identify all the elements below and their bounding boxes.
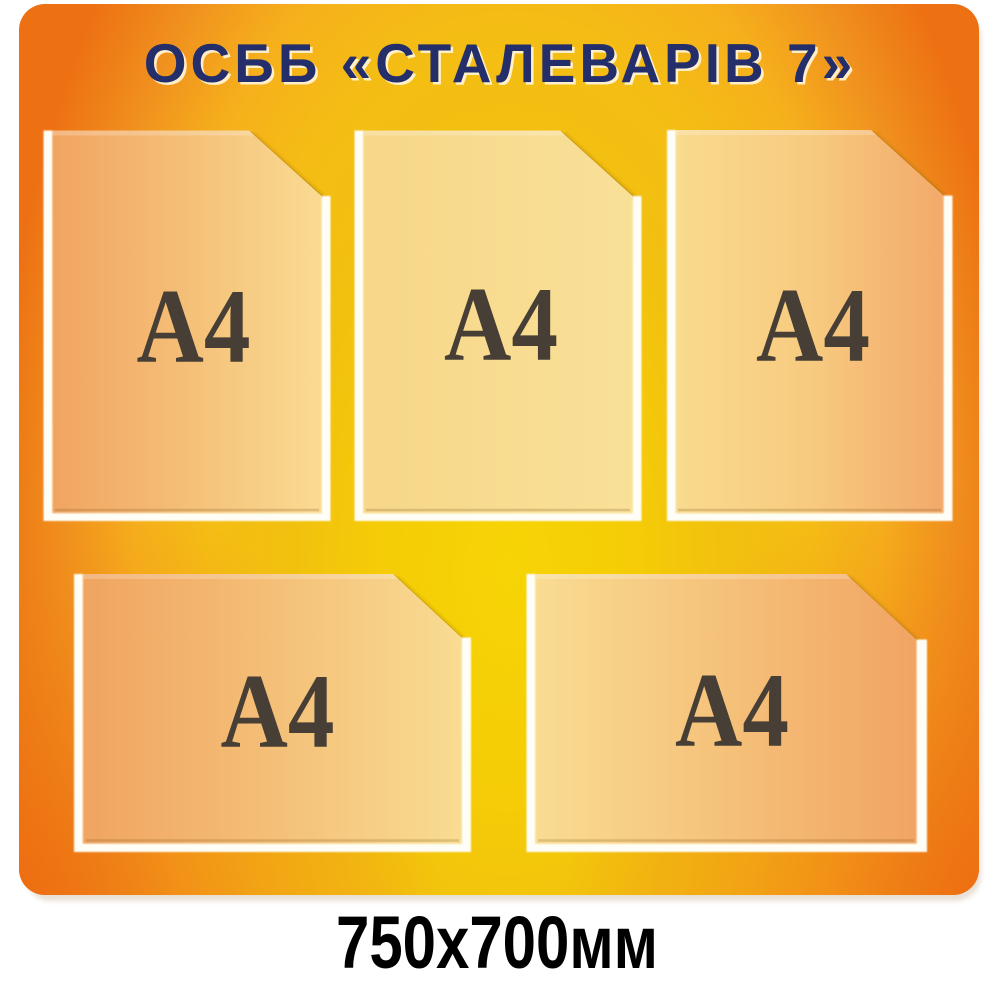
svg-text:750х700мм: 750х700мм	[336, 901, 658, 984]
svg-text:A4: A4	[444, 266, 558, 383]
svg-text:A4: A4	[756, 267, 870, 384]
svg-text:A4: A4	[675, 652, 789, 769]
svg-text:A4: A4	[137, 268, 251, 385]
svg-text:A4: A4	[221, 653, 335, 770]
svg-text:ОСББ «СТАЛЕВАРІВ 7»: ОСББ «СТАЛЕВАРІВ 7»	[144, 32, 856, 94]
